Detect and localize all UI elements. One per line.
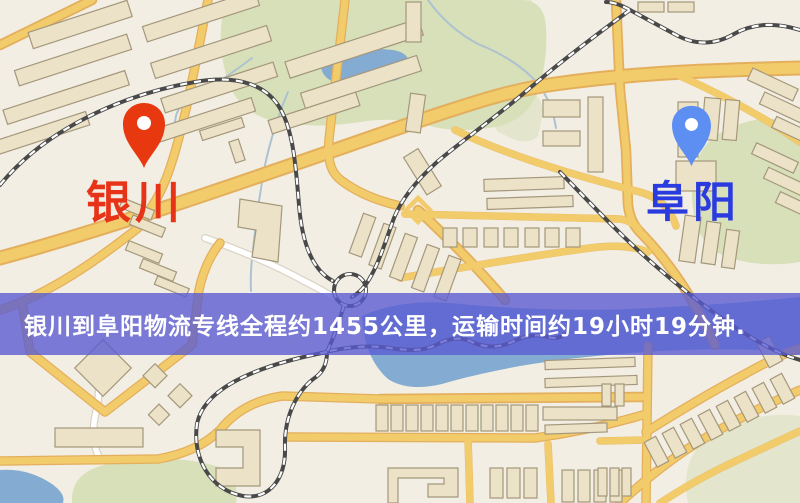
- fuyang-label: 阜阳: [646, 182, 740, 225]
- haze-overlay: [0, 0, 800, 503]
- yinchuan-label: 银川: [86, 180, 184, 225]
- route-info-text: 银川到阜阳物流专线全程约1455公里，运输时间约19小时19分钟.: [0, 293, 800, 355]
- route-info-banner: 银川到阜阳物流专线全程约1455公里，运输时间约19小时19分钟.: [0, 293, 800, 355]
- map-screenshot: 银川 阜阳 银川到阜阳物流专线全程约1455公里，运输时间约19小时19分钟.: [0, 0, 800, 503]
- static-map-image: [0, 0, 800, 503]
